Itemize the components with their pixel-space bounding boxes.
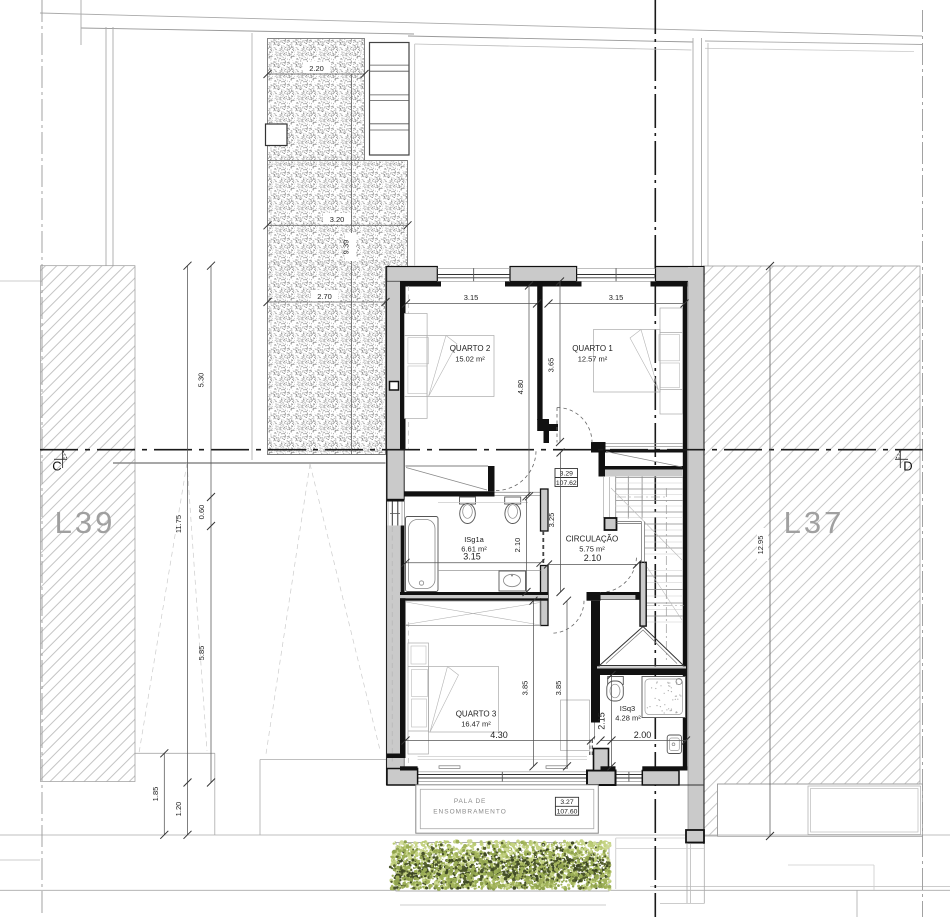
svg-text:QUARTO 3: QUARTO 3: [456, 710, 497, 719]
svg-text:9.39: 9.39: [342, 240, 351, 255]
svg-text:3.20: 3.20: [330, 215, 345, 224]
svg-text:PALA DE: PALA DE: [454, 798, 486, 805]
svg-text:12.57 m²: 12.57 m²: [578, 355, 608, 364]
svg-text:1.85: 1.85: [151, 787, 160, 802]
svg-text:QUARTO 2: QUARTO 2: [450, 344, 491, 353]
svg-text:4.80: 4.80: [516, 380, 525, 395]
svg-text:107.62: 107.62: [556, 480, 577, 487]
svg-text:3.25: 3.25: [547, 513, 556, 528]
svg-text:16.47 m²: 16.47 m²: [461, 720, 491, 729]
svg-text:3.85: 3.85: [554, 681, 563, 696]
svg-text:3.65: 3.65: [547, 358, 556, 373]
svg-text:CIRCULAÇÃO: CIRCULAÇÃO: [566, 535, 618, 544]
svg-text:1.20: 1.20: [174, 802, 183, 817]
svg-text:3.15: 3.15: [609, 293, 624, 302]
svg-text:2.10: 2.10: [513, 538, 522, 553]
svg-text:QUARTO 1: QUARTO 1: [572, 344, 613, 353]
svg-text:6.61 m²: 6.61 m²: [461, 545, 487, 554]
svg-text:2.20: 2.20: [309, 64, 324, 73]
svg-text:11.75: 11.75: [174, 515, 183, 533]
svg-text:0.60: 0.60: [197, 505, 206, 520]
svg-text:2.15: 2.15: [597, 712, 607, 730]
svg-text:C: C: [52, 459, 61, 474]
svg-text:2.70: 2.70: [317, 292, 332, 301]
svg-text:L39: L39: [55, 505, 116, 540]
svg-text:3.27: 3.27: [560, 799, 573, 806]
svg-text:12.95: 12.95: [756, 536, 765, 555]
svg-text:5.75 m²: 5.75 m²: [579, 545, 605, 554]
svg-text:D: D: [903, 459, 912, 474]
svg-text:3.29: 3.29: [560, 471, 573, 478]
svg-text:L37: L37: [784, 505, 845, 540]
svg-text:4.28 m²: 4.28 m²: [615, 714, 641, 723]
svg-text:3.15: 3.15: [464, 293, 479, 302]
svg-text:2.00: 2.00: [634, 730, 652, 740]
svg-text:107.60: 107.60: [557, 808, 578, 815]
svg-text:2.10: 2.10: [584, 553, 602, 563]
svg-text:ISg1a: ISg1a: [464, 535, 484, 544]
svg-text:ENSOMBRAMENTO: ENSOMBRAMENTO: [433, 809, 507, 816]
svg-text:ISq3: ISq3: [620, 704, 635, 713]
svg-text:15.02 m²: 15.02 m²: [455, 355, 485, 364]
svg-text:4.30: 4.30: [490, 730, 508, 740]
svg-text:3.85: 3.85: [521, 681, 530, 696]
svg-text:5.85: 5.85: [197, 646, 206, 661]
svg-text:5.30: 5.30: [197, 373, 206, 388]
